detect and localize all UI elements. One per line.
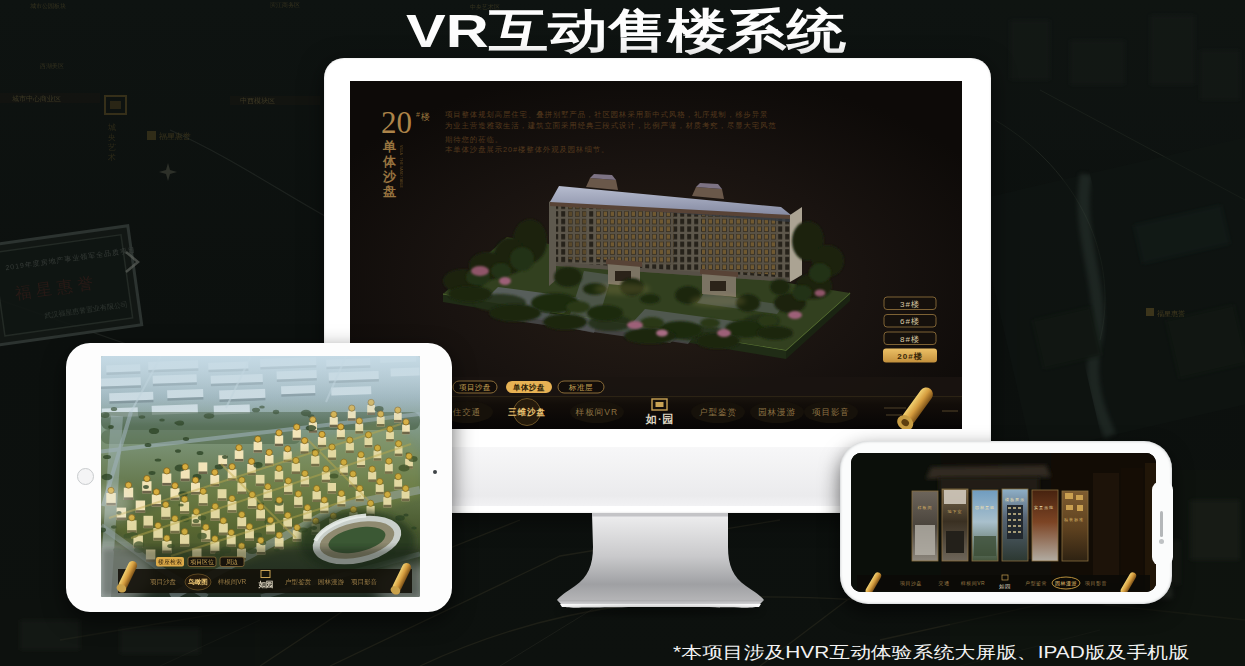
svg-text:标准层: 标准层 <box>568 383 593 392</box>
svg-text:交通: 交通 <box>939 580 950 586</box>
svg-text:项目沙盘: 项目沙盘 <box>150 578 177 586</box>
svg-text:6#楼: 6#楼 <box>900 317 920 326</box>
svg-text:滨江商务区: 滨江商务区 <box>270 1 300 8</box>
svg-text:体: 体 <box>382 154 397 169</box>
svg-text:户型鉴赏: 户型鉴赏 <box>699 407 737 417</box>
svg-text:样板间VR: 样板间VR <box>961 580 985 587</box>
svg-text:楼: 楼 <box>420 112 430 122</box>
svg-text:园林漫游: 园林漫游 <box>1055 580 1077 587</box>
svg-text:沙: 沙 <box>382 169 397 184</box>
svg-text:艺: 艺 <box>108 143 116 152</box>
svg-text:住交通: 住交通 <box>452 407 482 417</box>
svg-text:20#楼: 20#楼 <box>897 352 922 361</box>
svg-text:20: 20 <box>381 105 412 140</box>
svg-text:#: # <box>416 111 420 118</box>
svg-text:术: 术 <box>107 153 116 162</box>
svg-text:期待您的莅临。: 期待您的莅临。 <box>445 135 503 144</box>
svg-text:三维沙盘: 三维沙盘 <box>508 407 546 417</box>
svg-text:项目影音: 项目影音 <box>1084 580 1107 587</box>
svg-text:园林漫游: 园林漫游 <box>318 578 345 586</box>
svg-text:单: 单 <box>382 139 396 154</box>
svg-text:本单体沙盘展示20#楼整体外观及园林细节。: 本单体沙盘展示20#楼整体外观及园林细节。 <box>445 145 609 154</box>
svg-text:如园: 如园 <box>999 583 1011 590</box>
svg-text:城市中心商业区: 城市中心商业区 <box>11 94 61 102</box>
svg-text:*本项目涉及HVR互动体验系统大屏版、IPAD版及手机版: *本项目涉及HVR互动体验系统大屏版、IPAD版及手机版 <box>673 643 1190 661</box>
svg-text:福星惠誉: 福星惠誉 <box>158 132 191 141</box>
svg-text:3#楼: 3#楼 <box>900 300 920 309</box>
svg-text:西湖美区: 西湖美区 <box>40 62 64 70</box>
svg-text:VR互动售楼系统: VR互动售楼系统 <box>406 4 847 57</box>
svg-text:如园: 如园 <box>258 580 274 589</box>
svg-text:项目影音: 项目影音 <box>812 407 850 417</box>
svg-text:中西模块区: 中西模块区 <box>240 97 275 105</box>
svg-text:VILLA · THE SAND TABLE: VILLA · THE SAND TABLE <box>399 145 403 189</box>
svg-text:样板间VR: 样板间VR <box>218 578 247 586</box>
svg-text:城: 城 <box>107 123 116 132</box>
svg-text:项目沙盘: 项目沙盘 <box>899 580 922 587</box>
svg-text:8#楼: 8#楼 <box>900 335 920 344</box>
svg-text:如·园: 如·园 <box>645 413 675 425</box>
svg-text:央: 央 <box>108 133 116 142</box>
svg-text:园林景观: 园林景观 <box>975 505 995 510</box>
svg-text:项目区位: 项目区位 <box>190 558 214 566</box>
svg-text:项目影音: 项目影音 <box>351 578 378 586</box>
svg-text:为业主营造雅致生活，建筑立面采用经典三段式设计，比例严谨，材: 为业主营造雅致生活，建筑立面采用经典三段式设计，比例严谨，材质考究，尽显大宅风范 <box>445 121 777 130</box>
svg-text:项目整体规划高层住宅、叠拼别墅产品，社区园林采用新中式风格，: 项目整体规划高层住宅、叠拼别墅产品，社区园林采用新中式风格，礼序规制，移步异景 <box>445 110 768 119</box>
svg-text:户型鉴赏: 户型鉴赏 <box>1025 580 1047 587</box>
svg-text:鸟瞰图: 鸟瞰图 <box>187 578 208 586</box>
svg-text:项目沙盘: 项目沙盘 <box>459 383 491 392</box>
svg-text:户型鉴赏: 户型鉴赏 <box>285 578 312 586</box>
svg-text:样板间VR: 样板间VR <box>575 407 618 417</box>
svg-text:周边: 周边 <box>226 559 238 566</box>
svg-text:园林漫游: 园林漫游 <box>758 407 796 417</box>
svg-text:福星惠誉: 福星惠誉 <box>1157 310 1185 318</box>
svg-text:楼座检索: 楼座检索 <box>158 558 182 565</box>
svg-text:盘: 盘 <box>382 184 396 199</box>
svg-text:城市公园板块: 城市公园板块 <box>30 2 66 10</box>
svg-text:地下室: 地下室 <box>947 509 963 514</box>
svg-text:单体沙盘: 单体沙盘 <box>512 383 545 392</box>
